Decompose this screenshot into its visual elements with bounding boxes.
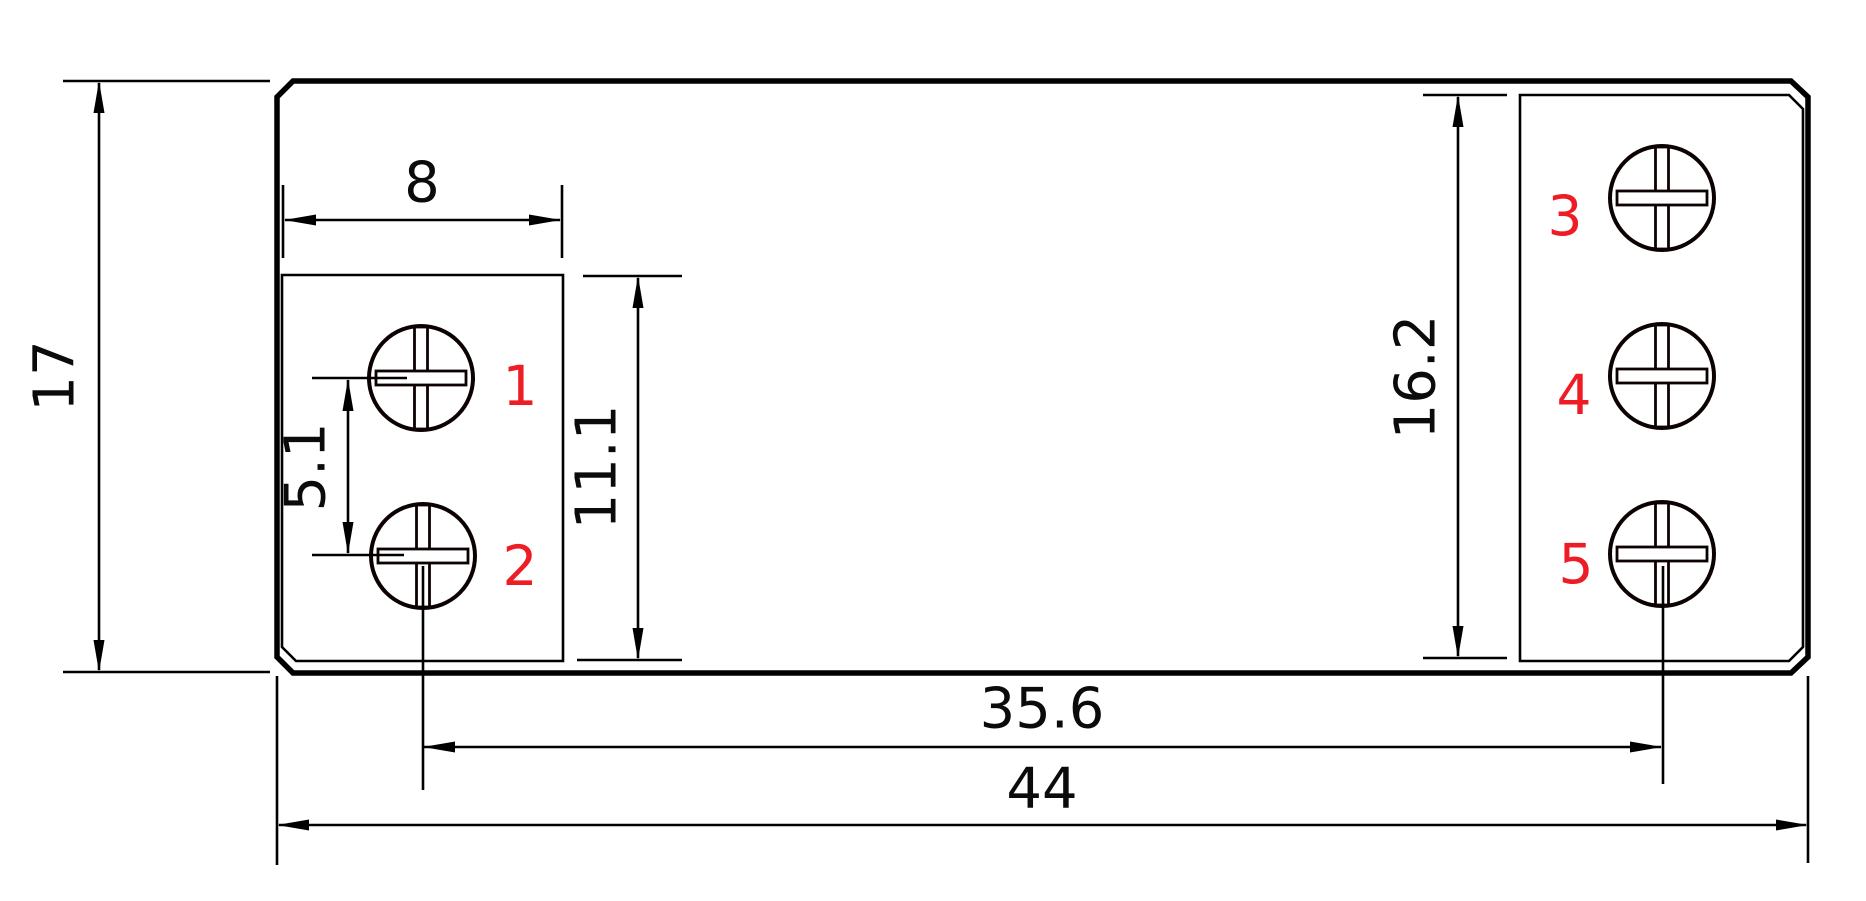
technical-drawing-canvas: 17 8 5.1 11.1 16.2: [0, 0, 1866, 901]
dim-left-box-width: 8: [283, 151, 562, 259]
arrowhead-left: [277, 820, 309, 831]
screw-slot-horizontal: [1617, 547, 1707, 561]
screw-slot-horizontal: [1617, 191, 1707, 205]
arrowhead-up: [1453, 95, 1464, 127]
terminal-block-dimension-drawing: 17 8 5.1 11.1 16.2: [0, 0, 1866, 901]
arrowhead-down: [633, 628, 644, 660]
arrowhead-right: [1630, 742, 1662, 753]
dim-right-box-height: 16.2: [1384, 95, 1508, 658]
terminal-number-2: 2: [503, 534, 538, 598]
screw-slot-horizontal: [1617, 369, 1707, 383]
arrowhead-right: [529, 215, 561, 226]
arrowhead-up: [343, 379, 354, 411]
dim-left-box-height: 11.1: [565, 276, 683, 660]
arrowhead-down: [94, 640, 105, 672]
terminal-number-3: 3: [1548, 184, 1583, 248]
dimension-label: 17: [23, 340, 88, 411]
terminal-number-4: 4: [1557, 363, 1592, 427]
dimension-label: 8: [404, 151, 440, 216]
dimension-label: 11.1: [565, 405, 630, 530]
dimension-label: 16.2: [1384, 315, 1449, 440]
arrowhead-left: [284, 215, 316, 226]
arrowhead-down: [343, 522, 354, 554]
terminal-number-1: 1: [503, 354, 538, 418]
dimension-label: 5.1: [274, 422, 339, 511]
arrowhead-right: [1776, 820, 1808, 831]
arrowhead-up: [94, 81, 105, 113]
arrowhead-down: [1453, 626, 1464, 658]
dimension-label: 44: [1006, 757, 1077, 822]
screw-terminal-4: [1610, 324, 1714, 428]
arrowhead-up: [633, 276, 644, 308]
dimension-label: 35.6: [980, 677, 1105, 742]
terminal-number-5: 5: [1559, 532, 1594, 596]
dim-overall-height: 17: [23, 81, 271, 672]
arrowhead-left: [423, 742, 455, 753]
screw-terminal-3: [1610, 146, 1714, 250]
